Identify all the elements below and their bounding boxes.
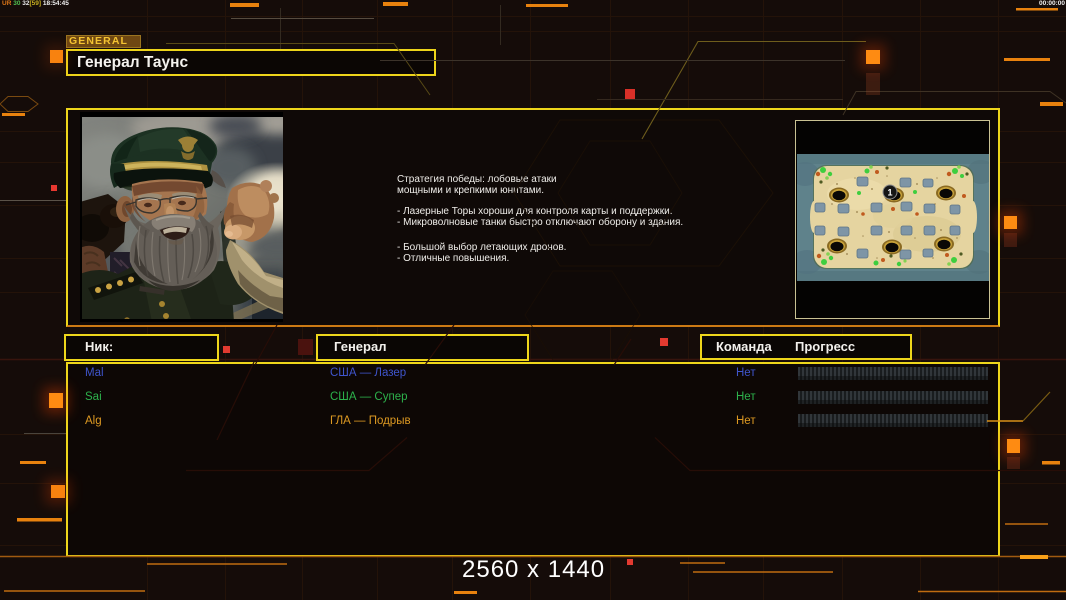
svg-text:1: 1 bbox=[887, 188, 892, 198]
